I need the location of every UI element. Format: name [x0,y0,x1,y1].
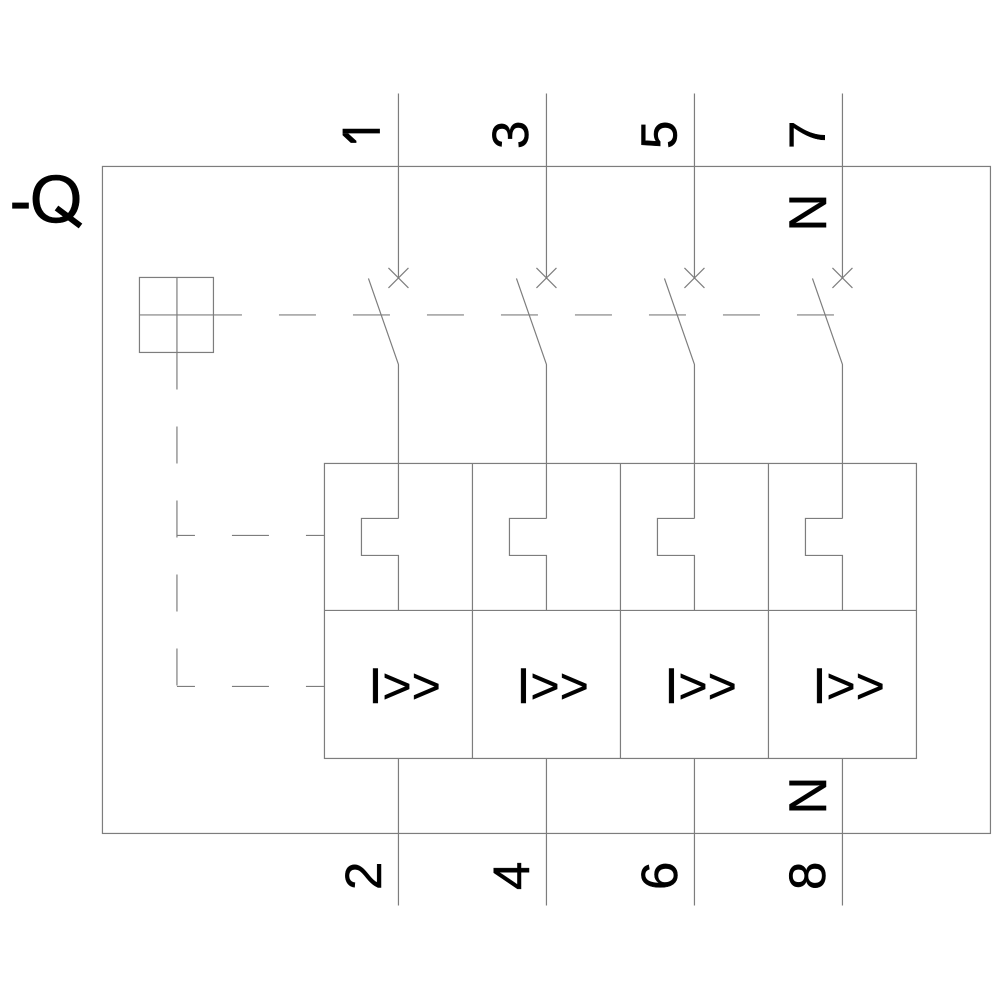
svg-text:O: O [30,162,83,238]
svg-text:7: 7 [779,121,836,149]
svg-text:8: 8 [779,862,836,890]
svg-text:I>>: I>> [517,658,589,714]
svg-text:N: N [779,194,838,232]
svg-text:3: 3 [482,121,539,149]
svg-text:N: N [779,777,838,815]
svg-text:I>>: I>> [369,658,441,714]
svg-text:I>>: I>> [813,658,885,714]
svg-text:6: 6 [631,862,688,890]
svg-text:4: 4 [483,862,540,890]
svg-text:I>>: I>> [665,658,737,714]
svg-text:5: 5 [631,121,688,149]
svg-text:2: 2 [335,862,392,890]
